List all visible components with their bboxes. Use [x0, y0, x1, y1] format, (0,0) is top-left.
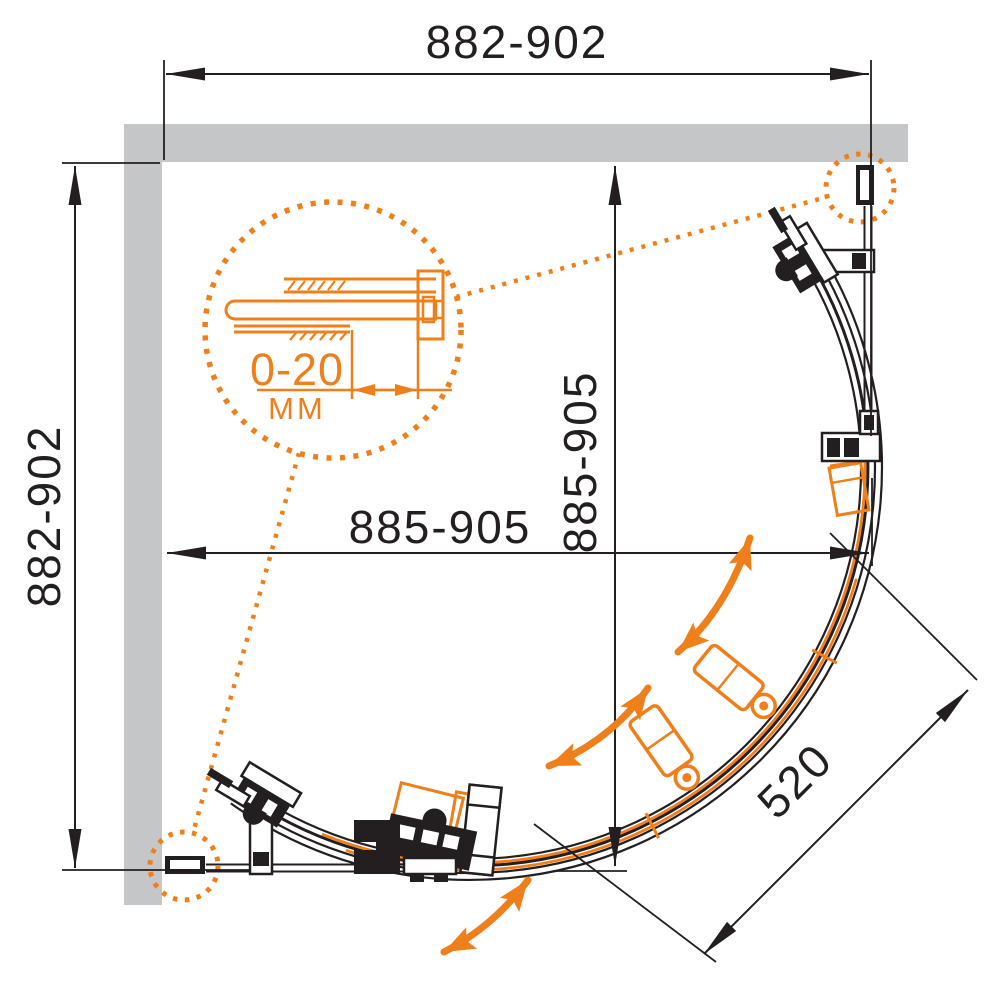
detail-range-label: 0-20 — [250, 344, 344, 395]
shower-enclosure-plan-drawing: 0-20 MM 882-902 882-902 885-905 885-905 … — [0, 0, 1001, 1000]
door-handle-rear — [628, 704, 707, 797]
detail-callout-circle — [205, 202, 461, 458]
dimension-front-radius: 520 — [534, 533, 977, 962]
wall-left — [124, 162, 162, 905]
overall-height-label: 882-902 — [18, 425, 70, 608]
dimension-inner-height: 885-905 — [553, 166, 627, 871]
wall-profile-bottom — [165, 856, 205, 874]
door-swing-arrows — [444, 538, 750, 952]
overall-width-label: 882-902 — [426, 16, 609, 68]
inner-width-label: 885-905 — [349, 501, 532, 553]
door-swing-arrow-upper — [678, 538, 750, 652]
front-radius-label: 520 — [747, 733, 842, 828]
dimension-inner-width: 885-905 — [167, 478, 872, 566]
detail-unit-label: MM — [268, 391, 326, 426]
wall-top — [124, 124, 908, 162]
detail-callout: 0-20 MM — [205, 202, 461, 458]
technical-drawing-page: 0-20 MM 882-902 882-902 885-905 885-905 … — [0, 0, 1001, 1000]
dimension-line — [704, 690, 968, 954]
door-swing-arrow-lower — [444, 880, 528, 952]
inner-height-label: 885-905 — [554, 371, 606, 554]
door-handle-front — [692, 644, 783, 727]
track-support-arm-bottom — [250, 818, 272, 874]
door-stop-bottom — [354, 783, 502, 882]
